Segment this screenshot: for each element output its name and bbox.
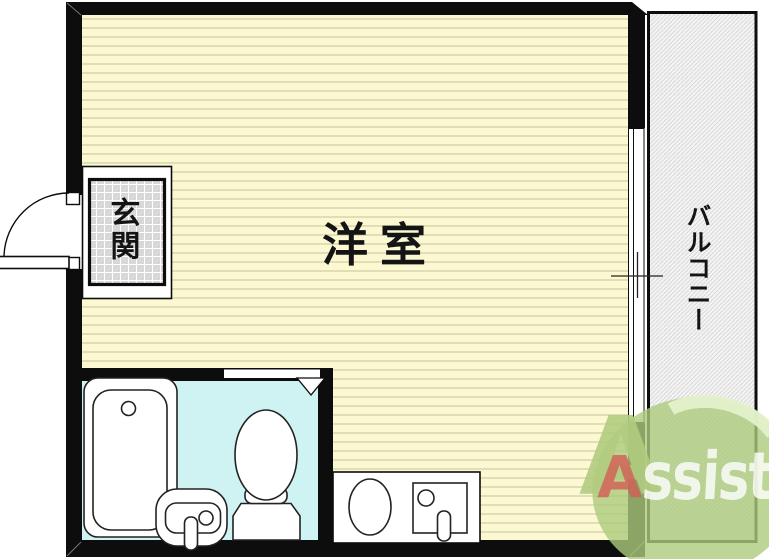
kitchen-faucet bbox=[438, 511, 451, 541]
bathtub-drain bbox=[122, 402, 136, 416]
wash-basin bbox=[156, 489, 227, 550]
door-swing-arc bbox=[4, 193, 69, 256]
wall-left-upper bbox=[66, 2, 82, 195]
door-jamb-top bbox=[67, 193, 80, 205]
wall-left-lower bbox=[66, 269, 82, 557]
kitchen-sink-unit bbox=[333, 472, 480, 543]
floor-plan: 洋室 玄関 バルコニー A A ssist bbox=[0, 0, 769, 559]
entry-door bbox=[0, 193, 80, 270]
toilet-bowl bbox=[235, 410, 297, 500]
toilet-tank bbox=[233, 504, 300, 541]
toilet bbox=[233, 410, 300, 540]
wall-right-upper bbox=[628, 13, 645, 128]
door-leaf bbox=[0, 257, 69, 269]
wall-top bbox=[66, 2, 632, 15]
watermark-text: ssist bbox=[640, 444, 769, 510]
kitchen-burner bbox=[349, 479, 391, 535]
balcony-label: バルコニー bbox=[684, 203, 711, 333]
basin-pedestal bbox=[185, 517, 198, 550]
wall-bathroom-right bbox=[318, 368, 333, 543]
main-room-label: 洋室 bbox=[305, 221, 455, 271]
basin-faucet bbox=[199, 511, 213, 525]
entrance-label: 玄関 bbox=[105, 197, 137, 263]
watermark-initial-accent: A bbox=[597, 448, 642, 506]
kitchen-drain bbox=[418, 490, 434, 506]
